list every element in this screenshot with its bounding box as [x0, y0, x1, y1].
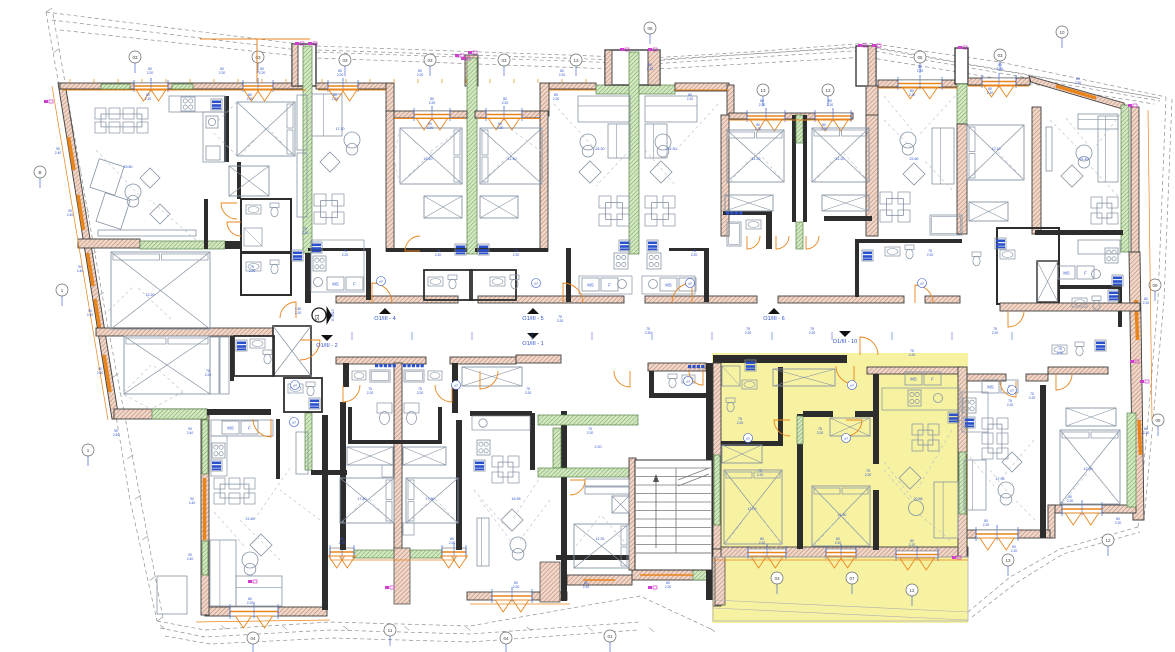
svg-text:24.30: 24.30 — [668, 147, 677, 151]
svg-text:09: 09 — [1152, 283, 1158, 288]
svg-text:u07: u07 — [688, 282, 693, 286]
svg-text:2.20: 2.20 — [339, 541, 346, 545]
svg-text:2.20: 2.20 — [342, 253, 349, 257]
svg-text:B: B — [38, 170, 41, 175]
svg-text:F: F — [248, 426, 251, 431]
svg-text:MS: MS — [587, 283, 593, 288]
svg-text:u07: u07 — [534, 282, 539, 286]
svg-text:8: 8 — [998, 73, 1000, 77]
svg-text:2.20: 2.20 — [755, 127, 762, 131]
svg-text:2.20: 2.20 — [595, 445, 602, 449]
svg-text:2.20: 2.20 — [497, 126, 504, 130]
svg-text:2.20: 2.20 — [809, 331, 816, 335]
svg-text:22.60: 22.60 — [910, 157, 919, 161]
svg-text:8: 8 — [431, 106, 433, 110]
svg-text:2.20: 2.20 — [737, 421, 744, 425]
svg-text:2.20: 2.20 — [337, 73, 344, 77]
svg-text:u07: u07 — [454, 384, 459, 388]
svg-text:05: 05 — [647, 26, 653, 31]
svg-text:u07: u07 — [920, 282, 925, 286]
svg-text:O1/III - 2: O1/III - 2 — [316, 343, 337, 349]
svg-text:03: 03 — [501, 58, 507, 63]
svg-text:2.40: 2.40 — [77, 269, 84, 273]
svg-text:2.20: 2.20 — [332, 97, 339, 101]
svg-text:2.20: 2.20 — [417, 391, 424, 395]
svg-text:2.20: 2.20 — [757, 473, 764, 477]
svg-text:2.20: 2.20 — [429, 101, 436, 105]
svg-text:11: 11 — [388, 628, 393, 633]
svg-text:2.20: 2.20 — [645, 331, 652, 335]
svg-text:O1/III - 5: O1/III - 5 — [522, 316, 543, 322]
svg-text:13: 13 — [760, 88, 766, 93]
svg-text:2.20: 2.20 — [583, 585, 590, 589]
svg-text:8: 8 — [253, 602, 255, 606]
svg-text:S1: S1 — [315, 314, 321, 321]
svg-text:O1/III - 1: O1/III - 1 — [522, 341, 543, 347]
svg-text:05: 05 — [917, 55, 923, 60]
svg-text:03: 03 — [342, 58, 348, 63]
svg-text:MS: MS — [227, 426, 233, 431]
svg-text:13: 13 — [573, 58, 579, 63]
svg-text:03: 03 — [255, 55, 261, 60]
svg-text:8: 8 — [1081, 500, 1083, 504]
svg-text:2.20: 2.20 — [997, 67, 1004, 71]
svg-text:2.20: 2.20 — [745, 331, 752, 335]
svg-text:2.20: 2.20 — [687, 97, 694, 101]
svg-text:8: 8 — [342, 78, 344, 82]
svg-text:2.40: 2.40 — [87, 313, 94, 317]
svg-text:E-9810: E-9810 — [331, 309, 335, 320]
svg-text:01: 01 — [607, 634, 613, 639]
svg-text:u07: u07 — [379, 280, 384, 284]
svg-text:20.85: 20.85 — [914, 497, 923, 501]
svg-text:05: 05 — [1155, 418, 1161, 423]
svg-text:04: 04 — [503, 636, 509, 641]
svg-text:MS: MS — [665, 283, 671, 288]
svg-text:2.20: 2.20 — [435, 253, 442, 257]
svg-text:12.30: 12.30 — [1084, 467, 1093, 471]
svg-text:2.20: 2.20 — [759, 541, 766, 545]
svg-text:2.20: 2.20 — [449, 541, 456, 545]
svg-text:2.40: 2.40 — [55, 151, 62, 155]
svg-text:2.20: 2.20 — [1057, 351, 1064, 355]
svg-text:03: 03 — [997, 53, 1003, 58]
svg-text:16.95: 16.95 — [512, 497, 521, 501]
svg-text:2.20: 2.20 — [557, 319, 564, 323]
svg-text:2.20: 2.20 — [647, 67, 654, 71]
svg-text:2.20: 2.20 — [865, 473, 872, 477]
svg-text:2.20: 2.20 — [759, 103, 766, 107]
svg-text:11.20: 11.20 — [752, 157, 761, 161]
svg-text:21.65: 21.65 — [246, 517, 255, 521]
svg-text:2.20: 2.20 — [247, 97, 254, 101]
svg-text:07: 07 — [849, 576, 855, 581]
svg-text:2.20: 2.20 — [691, 253, 698, 257]
svg-text:2.20: 2.20 — [553, 97, 560, 101]
svg-text:2.20: 2.20 — [513, 585, 520, 589]
svg-text:03: 03 — [132, 55, 138, 60]
svg-text:2.20: 2.20 — [249, 269, 256, 273]
svg-text:8: 8 — [765, 108, 767, 112]
svg-text:2.20: 2.20 — [219, 71, 226, 75]
svg-text:2.20: 2.20 — [513, 253, 520, 257]
svg-text:2.40: 2.40 — [187, 431, 194, 435]
svg-text:F: F — [608, 283, 611, 288]
svg-text:24.30: 24.30 — [596, 147, 605, 151]
svg-text:8: 8 — [503, 106, 505, 110]
svg-text:17.80: 17.80 — [358, 497, 367, 501]
svg-text:2.20: 2.20 — [987, 91, 994, 95]
svg-text:2.20: 2.20 — [417, 73, 424, 77]
svg-text:2.20: 2.20 — [1143, 301, 1150, 305]
svg-text:2.20: 2.20 — [835, 541, 842, 545]
svg-text:u07: u07 — [686, 380, 691, 384]
svg-text:13: 13 — [825, 88, 831, 93]
svg-text:2.20: 2.20 — [247, 601, 254, 605]
svg-text:2.40: 2.40 — [113, 433, 120, 437]
svg-text:2.20: 2.20 — [827, 103, 834, 107]
svg-text:u07: u07 — [746, 437, 751, 441]
svg-text:O1/III - 10: O1/III - 10 — [833, 339, 857, 345]
svg-text:F: F — [931, 377, 934, 382]
svg-text:2.20: 2.20 — [1075, 81, 1082, 85]
svg-text:MS: MS — [987, 385, 993, 390]
svg-text:10: 10 — [1059, 30, 1065, 35]
svg-text:MS: MS — [910, 377, 916, 382]
svg-text:2.20: 2.20 — [145, 97, 152, 101]
svg-text:12.10: 12.10 — [992, 147, 1001, 151]
svg-text:MS: MS — [332, 282, 338, 287]
svg-text:2.20: 2.20 — [502, 101, 509, 105]
svg-text:2.20: 2.20 — [909, 543, 916, 547]
svg-text:2.20: 2.20 — [295, 311, 302, 315]
svg-text:2.40: 2.40 — [189, 501, 196, 505]
svg-text:O1/III - 4: O1/III - 4 — [374, 316, 395, 322]
svg-text:8: 8 — [150, 78, 152, 82]
svg-text:03: 03 — [774, 576, 780, 581]
svg-text:8: 8 — [916, 546, 918, 550]
svg-text:2.40: 2.40 — [67, 213, 74, 217]
svg-text:8: 8 — [996, 525, 998, 529]
svg-text:2.20: 2.20 — [367, 391, 374, 395]
svg-text:13: 13 — [1005, 558, 1011, 563]
svg-text:2.20: 2.20 — [665, 585, 672, 589]
svg-text:04: 04 — [250, 636, 256, 641]
svg-text:8: 8 — [919, 75, 921, 79]
svg-text:21.40: 21.40 — [1080, 157, 1089, 161]
svg-text:2.20: 2.20 — [817, 431, 824, 435]
svg-text:2.20: 2.20 — [147, 71, 154, 75]
svg-text:17.95: 17.95 — [996, 477, 1005, 481]
svg-text:2.20: 2.20 — [525, 391, 532, 395]
svg-text:12.40: 12.40 — [508, 157, 517, 161]
svg-text:11.25: 11.25 — [596, 537, 605, 541]
svg-text:2.20: 2.20 — [1007, 403, 1014, 407]
svg-text:2.20: 2.20 — [1115, 521, 1122, 525]
svg-text:2.20: 2.20 — [1067, 499, 1074, 503]
svg-text:2.20: 2.20 — [427, 126, 434, 130]
svg-text:03: 03 — [427, 58, 433, 63]
svg-text:2.20: 2.20 — [917, 69, 924, 73]
svg-text:O1/III - 6: O1/III - 6 — [763, 316, 784, 322]
svg-text:2.40: 2.40 — [187, 557, 194, 561]
svg-text:F: F — [1084, 271, 1087, 276]
svg-text:2.40: 2.40 — [97, 371, 104, 375]
svg-text:u07: u07 — [844, 437, 849, 441]
svg-text:12.20: 12.20 — [146, 293, 155, 297]
svg-text:2.20: 2.20 — [302, 231, 309, 235]
svg-text:12: 12 — [1105, 538, 1111, 543]
svg-text:F: F — [353, 282, 356, 287]
svg-text:2.20: 2.20 — [821, 127, 828, 131]
svg-text:11.20: 11.20 — [836, 157, 845, 161]
svg-text:25.80: 25.80 — [124, 165, 133, 169]
svg-text:12.40: 12.40 — [424, 157, 433, 161]
svg-text:2.20: 2.20 — [909, 93, 916, 97]
svg-text:u07: u07 — [1010, 389, 1015, 393]
svg-text:u07: u07 — [292, 421, 297, 425]
svg-text:2.20: 2.20 — [1029, 396, 1036, 400]
svg-text:17.10: 17.10 — [336, 127, 345, 131]
svg-text:u07: u07 — [293, 384, 298, 388]
svg-text:2.20: 2.20 — [587, 431, 594, 435]
svg-text:2.20: 2.20 — [909, 353, 916, 357]
svg-text:11.30: 11.30 — [838, 513, 847, 517]
svg-text:12: 12 — [909, 588, 915, 593]
svg-text:2.20: 2.20 — [927, 253, 934, 257]
svg-text:2.20: 2.20 — [983, 523, 990, 527]
svg-text:2.20: 2.20 — [1011, 549, 1018, 553]
svg-text:2.20: 2.20 — [1143, 431, 1150, 435]
svg-text:MS: MS — [1063, 271, 1069, 276]
svg-text:2.20: 2.20 — [992, 331, 999, 335]
svg-text:2.20: 2.20 — [259, 71, 266, 75]
svg-text:2.20: 2.20 — [559, 73, 566, 77]
svg-text:u07: u07 — [850, 384, 855, 388]
svg-text:8: 8 — [832, 108, 834, 112]
svg-text:2.20: 2.20 — [205, 373, 212, 377]
